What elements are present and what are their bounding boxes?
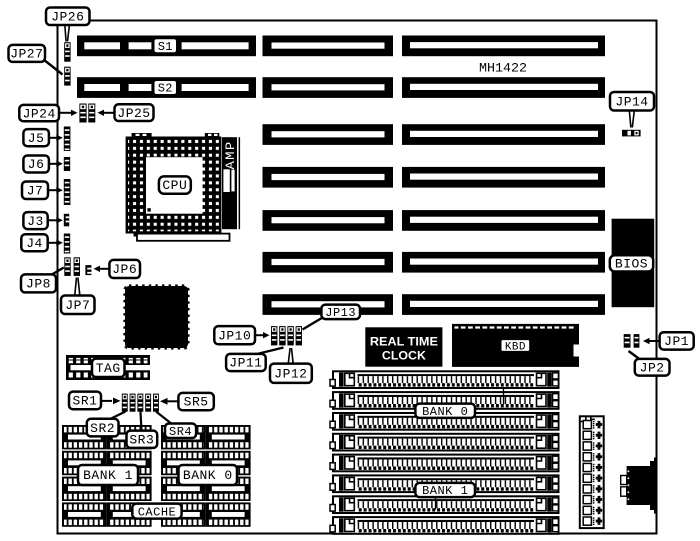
svg-text:JP7: JP7 (65, 298, 90, 313)
svg-text:SR4: SR4 (169, 425, 192, 439)
svg-text:AMP: AMP (224, 141, 238, 170)
svg-text:J6: J6 (28, 157, 45, 172)
svg-text:S2: S2 (158, 82, 173, 96)
svg-text:JP26: JP26 (51, 9, 84, 24)
svg-text:J4: J4 (26, 236, 43, 251)
svg-text:TAG: TAG (96, 361, 121, 376)
svg-text:JP27: JP27 (10, 47, 43, 62)
svg-text:BIOS: BIOS (615, 257, 648, 272)
svg-text:MH1422: MH1422 (479, 61, 527, 76)
svg-text:KBD: KBD (505, 342, 526, 354)
svg-text:JP1: JP1 (664, 334, 689, 349)
svg-text:BANK 0: BANK 0 (183, 468, 233, 483)
svg-text:CACHE: CACHE (138, 505, 177, 519)
svg-text:CPU: CPU (162, 178, 187, 193)
svg-text:J5: J5 (28, 131, 45, 146)
svg-text:JP13: JP13 (325, 306, 356, 320)
svg-text:SR2: SR2 (90, 421, 115, 436)
svg-text:REAL TIME: REAL TIME (370, 334, 438, 348)
svg-text:JP8: JP8 (26, 277, 51, 292)
svg-text:J7: J7 (27, 183, 44, 198)
svg-text:J3: J3 (27, 214, 44, 229)
svg-text:JP24: JP24 (23, 106, 56, 121)
svg-text:BANK 1: BANK 1 (83, 468, 133, 483)
svg-text:SR3: SR3 (129, 432, 154, 447)
svg-text:SR5: SR5 (184, 395, 209, 410)
svg-text:JP10: JP10 (218, 328, 251, 343)
svg-text:JP6: JP6 (112, 262, 137, 277)
svg-text:JP2: JP2 (640, 360, 665, 375)
svg-text:JP14: JP14 (615, 95, 648, 110)
svg-text:CLOCK: CLOCK (382, 349, 426, 363)
svg-text:BANK 0: BANK 0 (422, 405, 468, 419)
svg-text:JP11: JP11 (229, 356, 262, 371)
svg-text:S1: S1 (158, 40, 173, 54)
svg-text:SR1: SR1 (73, 394, 98, 409)
svg-text:JP25: JP25 (117, 106, 150, 121)
svg-text:BANK 1: BANK 1 (422, 484, 468, 498)
svg-text:JP12: JP12 (274, 366, 307, 381)
